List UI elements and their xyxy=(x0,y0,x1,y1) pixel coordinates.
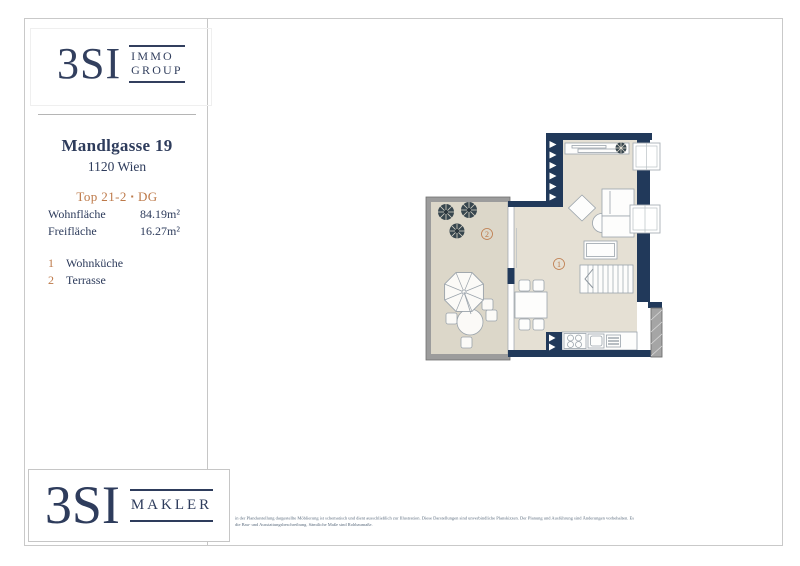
street-title: Mandlgasse 19 xyxy=(32,136,202,156)
property-address: Mandlgasse 19 1120 Wien Top 21-2▪DG xyxy=(32,136,202,205)
stove xyxy=(564,334,586,349)
brand-division-label: MAKLER xyxy=(131,498,212,513)
brand-3si-text: 3SI xyxy=(57,42,121,86)
disclaimer-text: in der Plandarstellung dargestellte Möbl… xyxy=(235,515,625,528)
unit-number: Top 21-2 xyxy=(76,189,126,204)
wohnkueche-floor xyxy=(514,140,637,350)
legend-number: 1 xyxy=(48,255,66,272)
brand-3si-text: 3SI xyxy=(45,481,120,530)
wall-step xyxy=(648,302,662,308)
floorplan-page: 3SI IMMO GROUP Mandlgasse 19 1120 Wien T… xyxy=(0,0,800,566)
immo-group-logo: 3SI IMMO GROUP xyxy=(57,42,185,86)
terrace-chair xyxy=(446,313,457,324)
plant-icon xyxy=(616,143,627,154)
brand-division-line2: GROUP xyxy=(131,64,183,78)
wall-terrace-top xyxy=(508,201,563,207)
legend-row: 1 Wohnküche xyxy=(48,255,123,272)
legend-label: Terrasse xyxy=(66,272,106,289)
area-label: Wohnfläche xyxy=(48,206,106,223)
area-label: Freifläche xyxy=(48,223,97,240)
terrace xyxy=(426,197,510,360)
window xyxy=(630,205,660,233)
exterior-stair-hatch xyxy=(651,308,662,357)
area-table: Wohnfläche 84.19m² Freifläche 16.27m² xyxy=(48,206,180,240)
legend-row: 2 Terrasse xyxy=(48,272,123,289)
tree-icon xyxy=(438,204,454,220)
room-legend: 1 Wohnküche 2 Terrasse xyxy=(48,255,123,289)
floor-plan: 1 2 xyxy=(420,110,692,382)
area-value: 16.27m² xyxy=(140,223,180,240)
area-value: 84.19m² xyxy=(140,206,180,223)
brand-division-line1: IMMO xyxy=(131,50,183,64)
terrace-table xyxy=(457,309,483,335)
room-label-number: 2 xyxy=(485,230,489,239)
window xyxy=(633,143,660,170)
wall-bottom xyxy=(508,350,652,357)
lowboard xyxy=(584,241,617,259)
wall-hatched-left xyxy=(546,133,563,207)
brand-division: IMMO GROUP xyxy=(129,45,185,83)
wall-hatched-kitchen xyxy=(546,332,562,351)
room-label-number: 1 xyxy=(557,260,561,269)
brand-division: MAKLER xyxy=(130,489,213,522)
city-subtitle: 1120 Wien xyxy=(32,159,202,175)
disclaimer-line2: die Bau- und Ausstattungsbeschreibung. S… xyxy=(235,522,625,529)
terrace-chair xyxy=(461,337,472,348)
logo-underline xyxy=(38,114,196,115)
legend-label: Wohnküche xyxy=(66,255,123,272)
tree-icon xyxy=(461,202,477,218)
sofa xyxy=(602,189,634,237)
makler-logo-box: 3SI MAKLER xyxy=(28,469,230,542)
square-bullet-icon: ▪ xyxy=(127,192,138,201)
vent-grill xyxy=(607,335,621,347)
area-row: Wohnfläche 84.19m² xyxy=(48,206,180,223)
terrace-chair xyxy=(486,310,497,321)
kitchen-counter xyxy=(562,332,637,350)
terrace-chair xyxy=(482,299,493,310)
area-row: Freifläche 16.27m² xyxy=(48,223,180,240)
stairs xyxy=(580,265,633,293)
unit-line: Top 21-2▪DG xyxy=(32,189,202,205)
legend-number: 2 xyxy=(48,272,66,289)
floor-plan-svg: 1 2 xyxy=(420,110,692,382)
floor-tag: DG xyxy=(138,189,158,204)
